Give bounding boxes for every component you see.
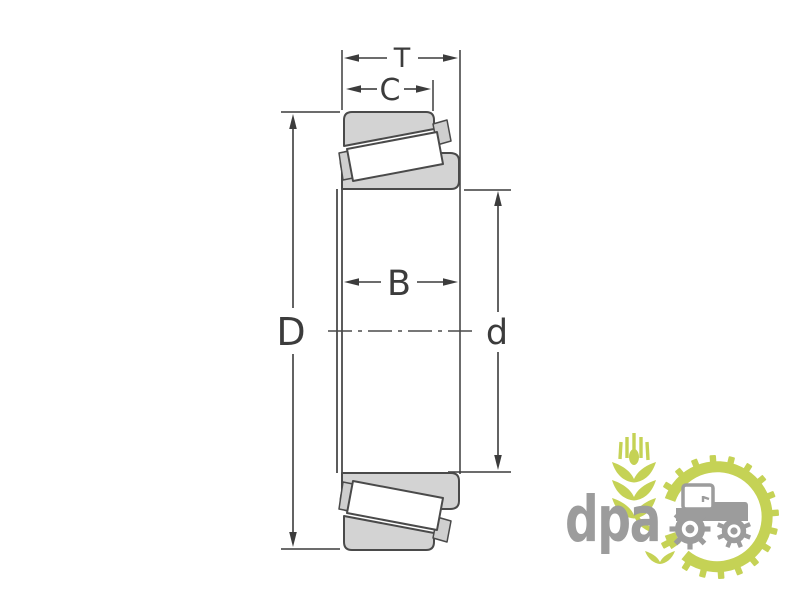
arrow-up-icon — [494, 191, 502, 206]
dimension-C: C — [346, 73, 431, 108]
dimension-d: d — [486, 191, 508, 470]
arrow-left-icon — [346, 85, 361, 93]
tractor-rear-wheel — [670, 509, 711, 550]
dimension-B: B — [344, 264, 458, 304]
logo-wordmark: dpa — [565, 483, 660, 556]
dimension-C-label: C — [380, 73, 401, 108]
dimension-T-label: T — [393, 43, 411, 74]
bearing-bottom-half — [339, 473, 459, 550]
tractor-icon — [670, 485, 752, 550]
arrow-up-icon — [289, 114, 297, 129]
dimension-D: D — [276, 114, 305, 547]
arrow-down-icon — [289, 532, 297, 547]
dimension-d-label: d — [486, 313, 508, 353]
arrow-right-icon — [443, 54, 458, 62]
arrow-down-icon — [494, 455, 502, 470]
arrow-right-icon — [443, 278, 458, 286]
dimension-T: T — [344, 43, 458, 74]
dpa-logo: dpa — [565, 433, 779, 579]
dimension-D-label: D — [276, 310, 305, 354]
screenshot-canvas: T C B D d — [0, 0, 800, 600]
arrow-left-icon — [344, 54, 359, 62]
dimension-B-label: B — [387, 264, 411, 304]
arrow-right-icon — [416, 85, 431, 93]
bearing-top-half — [339, 112, 459, 189]
arrow-left-icon — [344, 278, 359, 286]
bearing-diagram-svg: T C B D d — [0, 0, 800, 600]
